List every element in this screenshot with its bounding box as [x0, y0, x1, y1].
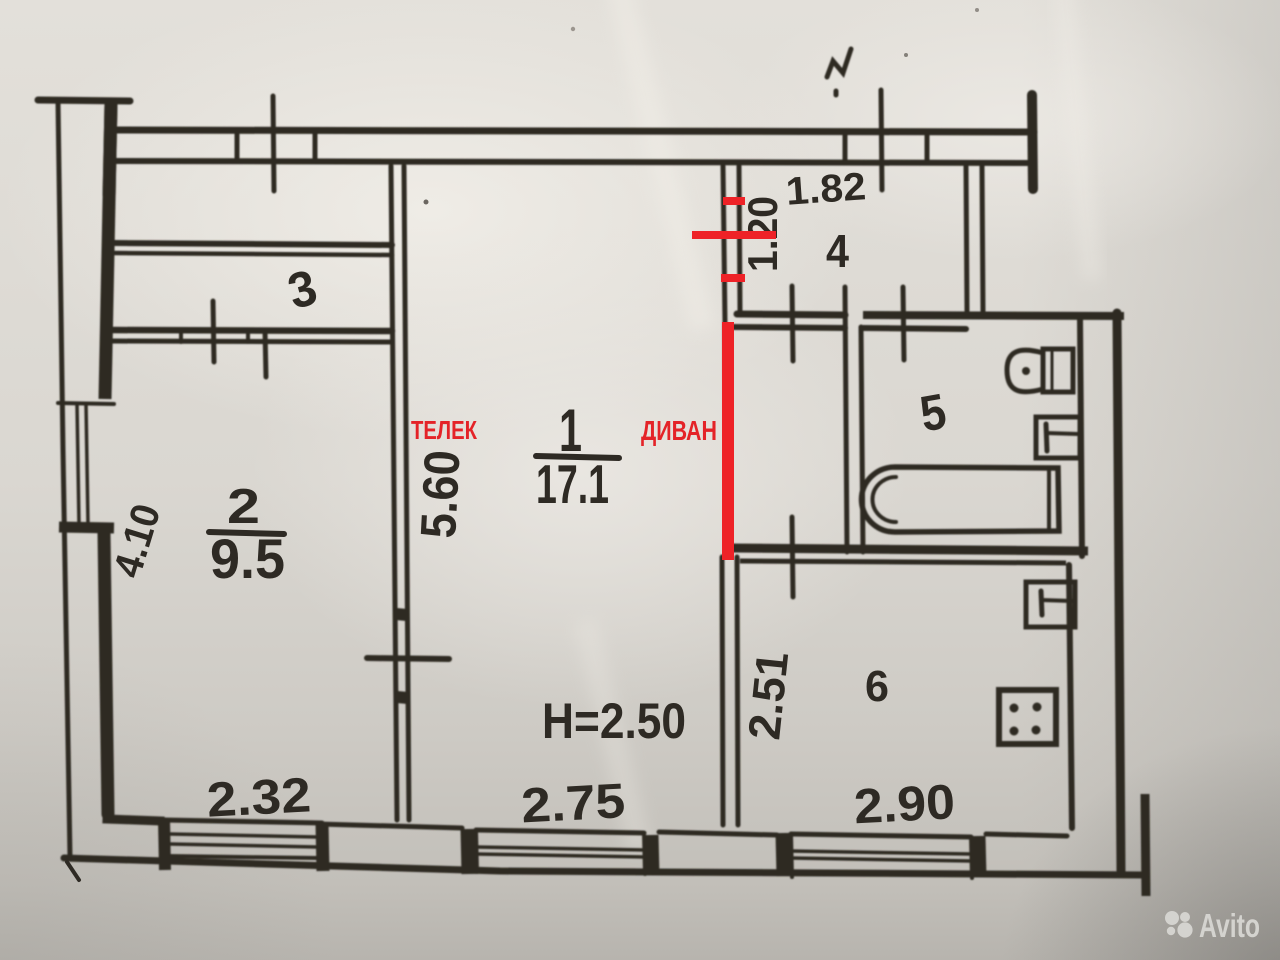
- svg-text:H=2.50: H=2.50: [542, 693, 686, 749]
- svg-text:ДИВАН: ДИВАН: [641, 415, 717, 446]
- svg-text:9.5: 9.5: [210, 527, 285, 590]
- svg-text:2: 2: [227, 480, 260, 534]
- svg-text:4: 4: [826, 225, 849, 277]
- svg-text:1.82: 1.82: [785, 165, 868, 213]
- svg-text:2.90: 2.90: [853, 775, 957, 834]
- svg-text:17.1: 17.1: [536, 453, 609, 515]
- svg-text:2.75: 2.75: [520, 774, 627, 833]
- svg-text:6: 6: [865, 662, 889, 711]
- svg-text:2.32: 2.32: [206, 768, 313, 827]
- svg-text:5.60: 5.60: [410, 449, 471, 540]
- svg-text:Avito: Avito: [1199, 907, 1260, 944]
- svg-text:2.51: 2.51: [738, 649, 798, 742]
- svg-text:ТЕЛЕК: ТЕЛЕК: [411, 415, 477, 445]
